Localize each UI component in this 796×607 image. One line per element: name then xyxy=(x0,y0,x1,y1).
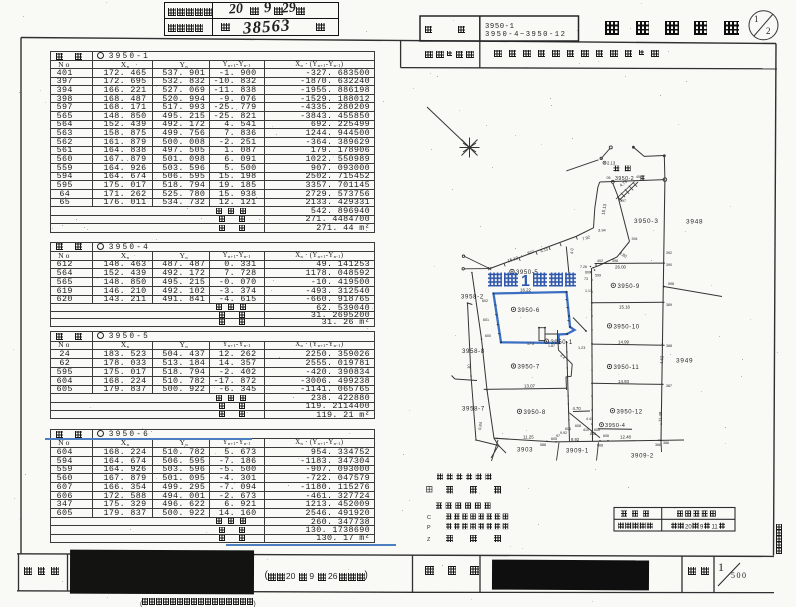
svg-text:3948: 3948 xyxy=(686,219,703,226)
svg-text:1.87: 1.87 xyxy=(548,344,555,348)
svg-text:3950-4: 3950-4 xyxy=(605,423,625,429)
svg-text:390: 390 xyxy=(666,263,672,267)
svg-text:386: 386 xyxy=(663,441,669,445)
svg-text:608: 608 xyxy=(597,444,603,448)
svg-text:394: 394 xyxy=(632,237,638,241)
svg-text:3950-3: 3950-3 xyxy=(634,218,659,225)
svg-text:3909-1: 3909-1 xyxy=(566,449,589,455)
svg-text:388: 388 xyxy=(666,344,672,348)
svg-text:3950-8: 3950-8 xyxy=(524,410,546,416)
svg-text:608: 608 xyxy=(575,424,581,428)
svg-text:368: 368 xyxy=(655,443,661,447)
svg-text:26.00: 26.00 xyxy=(615,265,627,270)
svg-text:3950-7: 3950-7 xyxy=(518,365,540,371)
svg-text:387: 387 xyxy=(666,384,672,388)
svg-text:410: 410 xyxy=(583,428,589,432)
svg-text:3903: 3903 xyxy=(517,448,533,454)
svg-text:827: 827 xyxy=(527,249,536,256)
svg-text:8.92: 8.92 xyxy=(571,437,580,442)
svg-text:600: 600 xyxy=(594,428,600,432)
svg-text:402: 402 xyxy=(597,259,603,263)
svg-text:392: 392 xyxy=(666,251,672,255)
svg-text:3950-10: 3950-10 xyxy=(614,325,640,331)
svg-text:606: 606 xyxy=(603,434,609,438)
svg-text:599: 599 xyxy=(595,274,601,278)
svg-text:598: 598 xyxy=(668,282,674,286)
svg-text:1.17: 1.17 xyxy=(585,289,592,293)
svg-text:3950-11: 3950-11 xyxy=(614,365,640,371)
svg-text:Z: Z xyxy=(427,537,431,543)
svg-text:11: 11 xyxy=(712,524,719,530)
svg-text:3958-7: 3958-7 xyxy=(462,407,485,413)
svg-text:4.70: 4.70 xyxy=(573,406,582,411)
svg-text:7.26: 7.26 xyxy=(580,265,587,269)
svg-text:05: 05 xyxy=(607,176,611,180)
svg-text:3950-6: 3950-6 xyxy=(518,308,540,314)
svg-text:3.94: 3.94 xyxy=(598,228,607,233)
svg-text:4.41: 4.41 xyxy=(586,417,593,421)
svg-text:9.92: 9.92 xyxy=(560,431,567,435)
svg-text:C: C xyxy=(427,515,431,521)
svg-text:0.84: 0.84 xyxy=(477,421,483,430)
svg-text:602: 602 xyxy=(482,299,488,303)
svg-text:389: 389 xyxy=(666,303,672,307)
svg-text:398: 398 xyxy=(612,259,618,263)
svg-text:600: 600 xyxy=(485,334,491,338)
svg-text:605: 605 xyxy=(565,427,571,431)
svg-text:2: 2 xyxy=(766,26,771,36)
svg-text:11.25: 11.25 xyxy=(523,435,534,440)
svg-text:3949: 3949 xyxy=(676,358,693,365)
svg-text:15.16: 15.16 xyxy=(619,305,631,310)
svg-text:20: 20 xyxy=(685,524,692,530)
svg-text:615: 615 xyxy=(590,432,596,436)
svg-text:4.80: 4.80 xyxy=(619,251,629,260)
svg-text:15.13: 15.13 xyxy=(601,203,608,215)
svg-text:7.92: 7.92 xyxy=(582,234,592,241)
svg-text:600: 600 xyxy=(585,271,591,275)
svg-text:3958-8: 3958-8 xyxy=(462,349,485,355)
svg-text:9: 9 xyxy=(700,524,704,530)
svg-text:1: 1 xyxy=(754,14,759,24)
svg-text:601: 601 xyxy=(483,318,489,322)
svg-text:14.93: 14.93 xyxy=(618,379,630,384)
svg-text:P: P xyxy=(427,525,431,531)
svg-text:1.23: 1.23 xyxy=(578,346,585,350)
svg-text:15.13: 15.13 xyxy=(507,255,520,263)
svg-text:1: 1 xyxy=(521,273,530,290)
svg-text:401: 401 xyxy=(636,175,642,179)
svg-text:4 0: 4 0 xyxy=(569,247,575,254)
svg-text:3958-2: 3958-2 xyxy=(461,295,484,301)
svg-text:3909-2: 3909-2 xyxy=(631,454,654,460)
svg-text:14.99: 14.99 xyxy=(618,340,630,345)
svg-text:4.62: 4.62 xyxy=(659,355,664,364)
svg-text:12.48: 12.48 xyxy=(620,434,632,439)
svg-text:2.13: 2.13 xyxy=(607,161,616,166)
svg-text:17.5: 17.5 xyxy=(527,342,534,346)
svg-text:73: 73 xyxy=(584,277,588,281)
svg-text:588: 588 xyxy=(540,443,546,447)
svg-text:3950-9: 3950-9 xyxy=(618,284,640,290)
svg-text:13.07: 13.07 xyxy=(524,384,536,389)
svg-text:6.4: 6.4 xyxy=(559,354,565,360)
svg-text:11.48: 11.48 xyxy=(658,411,664,422)
svg-text:3950-12: 3950-12 xyxy=(617,409,643,415)
svg-text:97: 97 xyxy=(556,434,560,438)
